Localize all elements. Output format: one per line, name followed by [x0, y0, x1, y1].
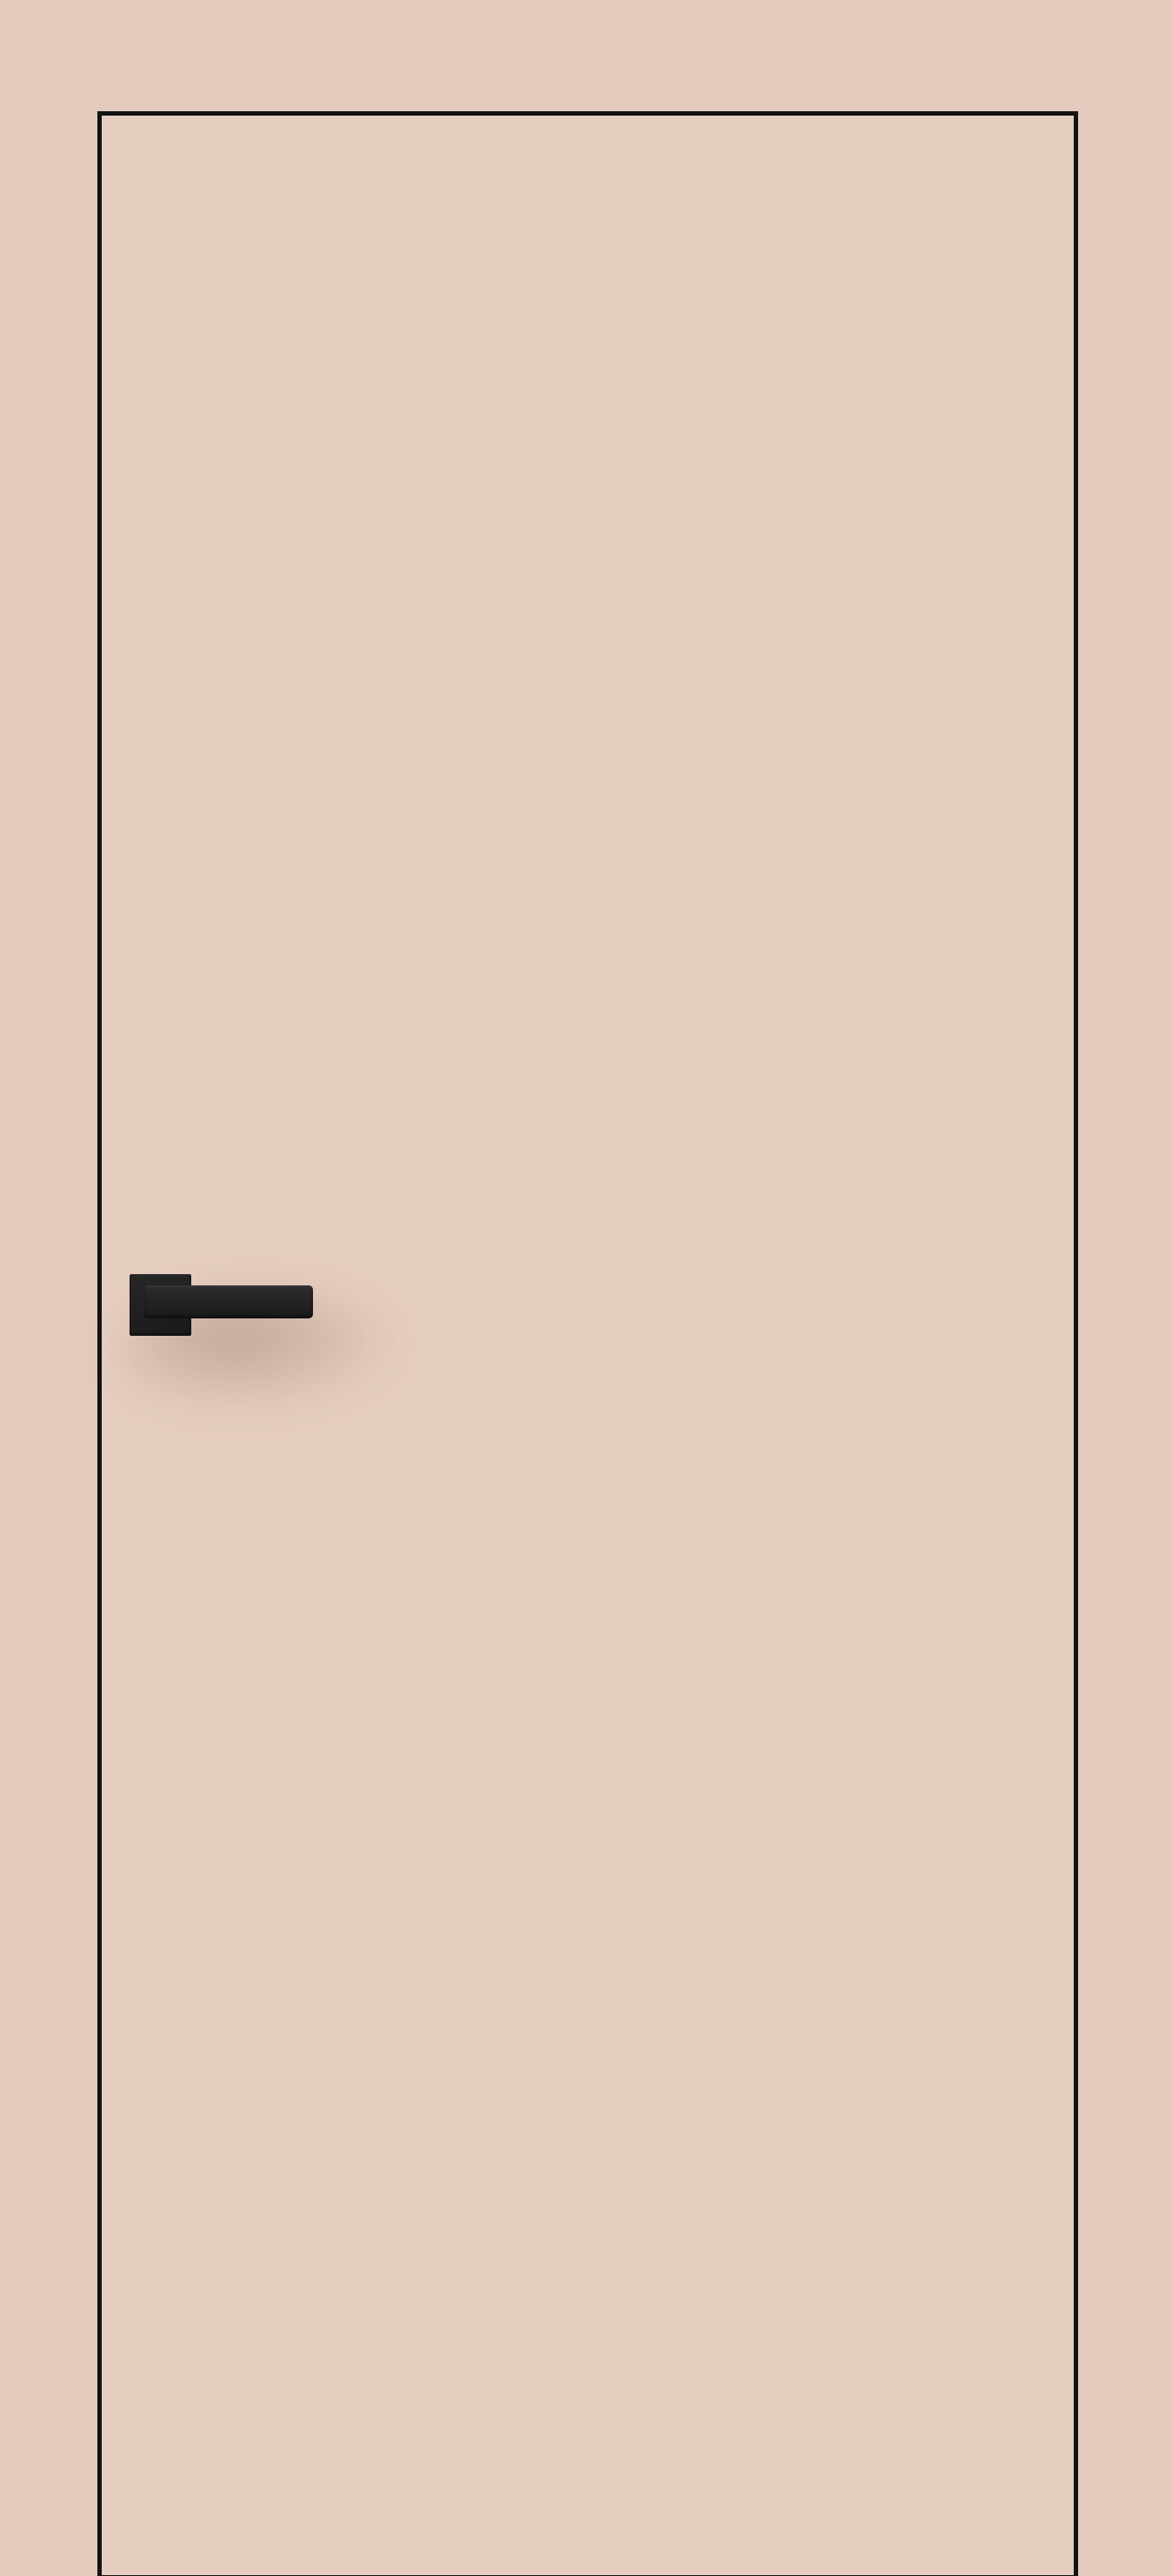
door-handle-lever	[144, 1285, 313, 1318]
door-panel	[97, 111, 1078, 2576]
scene-background	[0, 0, 1172, 2576]
